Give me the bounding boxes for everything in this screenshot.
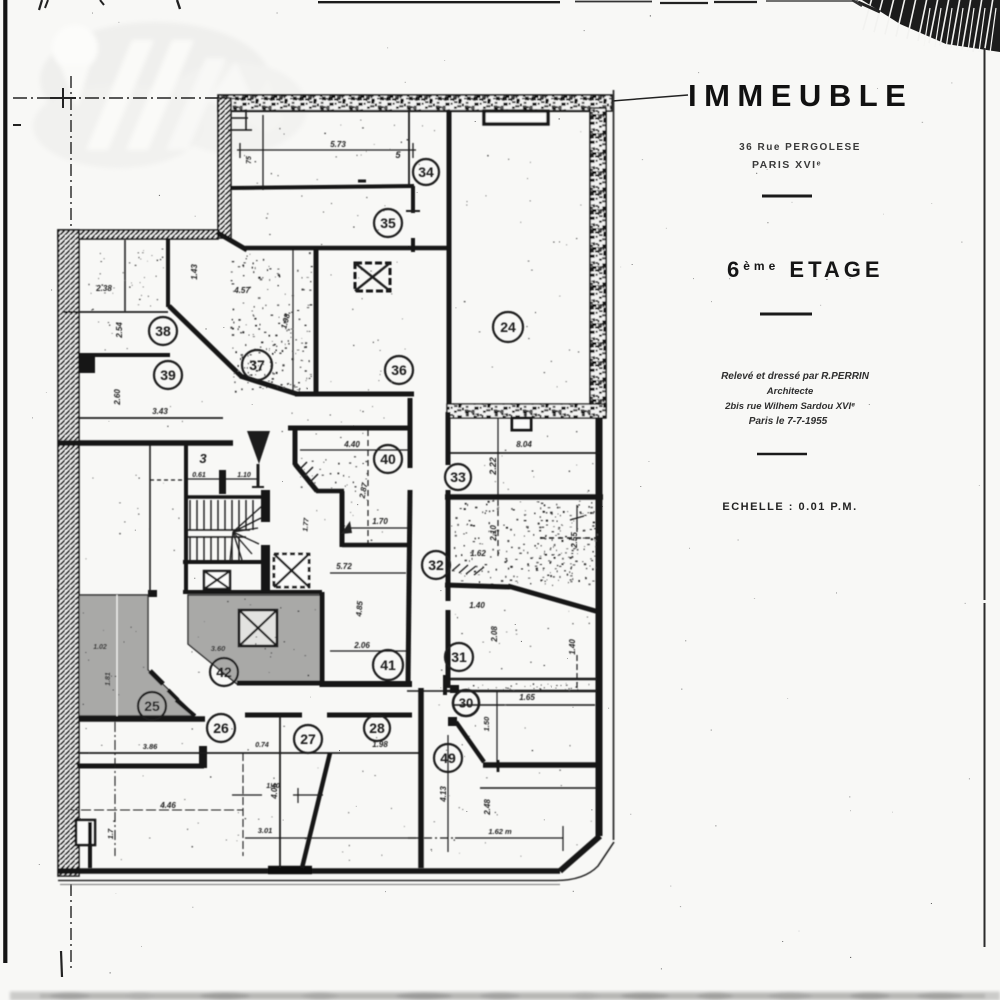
svg-text:2.38: 2.38 — [95, 284, 112, 293]
svg-text:1.98: 1.98 — [372, 740, 388, 749]
svg-text:4.57: 4.57 — [233, 286, 250, 295]
svg-text:1.10: 1.10 — [237, 472, 251, 479]
svg-text:1.02: 1.02 — [93, 644, 107, 651]
svg-text:1.7: 1.7 — [106, 828, 115, 839]
svg-text:1.70: 1.70 — [372, 517, 388, 526]
svg-text:33: 33 — [450, 469, 466, 485]
svg-text:2bis rue Wilhem Sardou XVIᵉ: 2bis rue Wilhem Sardou XVIᵉ — [724, 401, 855, 412]
svg-text:2.55: 2.55 — [570, 532, 579, 549]
svg-text:3: 3 — [199, 451, 207, 466]
svg-text:25: 25 — [144, 698, 160, 714]
svg-text:3.01: 3.01 — [258, 826, 273, 835]
svg-text:26: 26 — [213, 720, 229, 736]
svg-text:4.13: 4.13 — [439, 786, 448, 803]
svg-text:2.08: 2.08 — [490, 626, 499, 643]
svg-text:36: 36 — [391, 362, 407, 378]
svg-text:1.40: 1.40 — [568, 639, 577, 655]
svg-text:41: 41 — [380, 657, 396, 673]
svg-text:2.48: 2.48 — [483, 799, 492, 816]
svg-text:37: 37 — [249, 357, 265, 373]
svg-text:2.10: 2.10 — [489, 525, 498, 542]
svg-text:39: 39 — [160, 367, 176, 383]
svg-text:34: 34 — [418, 164, 434, 180]
svg-text:Paris le 7-7-1955: Paris le 7-7-1955 — [749, 416, 828, 427]
svg-text:31: 31 — [451, 649, 467, 665]
svg-text:42: 42 — [216, 664, 232, 680]
svg-text:38: 38 — [155, 323, 171, 339]
svg-text:49: 49 — [440, 750, 456, 766]
svg-text:2.60: 2.60 — [113, 389, 122, 406]
svg-text:27: 27 — [300, 731, 316, 747]
svg-text:0.74: 0.74 — [255, 742, 269, 749]
svg-text:24: 24 — [500, 319, 516, 335]
svg-text:4.85: 4.85 — [354, 600, 364, 618]
svg-text:3.43: 3.43 — [152, 407, 168, 416]
svg-text:2.54: 2.54 — [115, 322, 124, 339]
svg-text:1.40: 1.40 — [469, 601, 485, 610]
svg-text:36 Rue PERGOLESE: 36 Rue PERGOLESE — [739, 142, 861, 153]
svg-text:30: 30 — [459, 696, 473, 711]
svg-text:ECHELLE : 0.01 P.M.: ECHELLE : 0.01 P.M. — [722, 501, 857, 513]
svg-text:1.50: 1.50 — [482, 716, 491, 731]
svg-text:4.40: 4.40 — [343, 440, 360, 449]
svg-text:8.04: 8.04 — [516, 440, 532, 449]
svg-text:2.06: 2.06 — [353, 641, 370, 650]
svg-text:5.72: 5.72 — [336, 562, 352, 571]
svg-text:32: 32 — [428, 557, 444, 573]
svg-text:75: 75 — [246, 156, 253, 164]
svg-text:1.43: 1.43 — [190, 264, 199, 280]
svg-text:3.86: 3.86 — [143, 742, 158, 751]
svg-text:IMMEUBLE: IMMEUBLE — [688, 78, 913, 113]
svg-text:1.62: 1.62 — [470, 549, 486, 558]
svg-text:Relevé et dressé par R.PERRIN: Relevé et dressé par R.PERRIN — [721, 371, 870, 382]
svg-text:1.40: 1.40 — [266, 783, 280, 790]
svg-text:35: 35 — [380, 215, 396, 231]
svg-text:Architecte: Architecte — [766, 386, 814, 397]
svg-text:4.46: 4.46 — [159, 801, 176, 810]
svg-text:1.77: 1.77 — [302, 517, 310, 532]
svg-text:1.81: 1.81 — [105, 672, 112, 686]
svg-text:2.22: 2.22 — [488, 457, 498, 476]
svg-text:0.61: 0.61 — [192, 472, 206, 479]
svg-text:28: 28 — [369, 720, 385, 736]
svg-text:3.60: 3.60 — [211, 644, 226, 653]
svg-text:40: 40 — [380, 451, 396, 467]
svg-text:PARIS XVIᵉ: PARIS XVIᵉ — [752, 159, 822, 171]
svg-text:1.62 m: 1.62 m — [488, 827, 512, 836]
svg-text:1.65: 1.65 — [519, 693, 535, 702]
